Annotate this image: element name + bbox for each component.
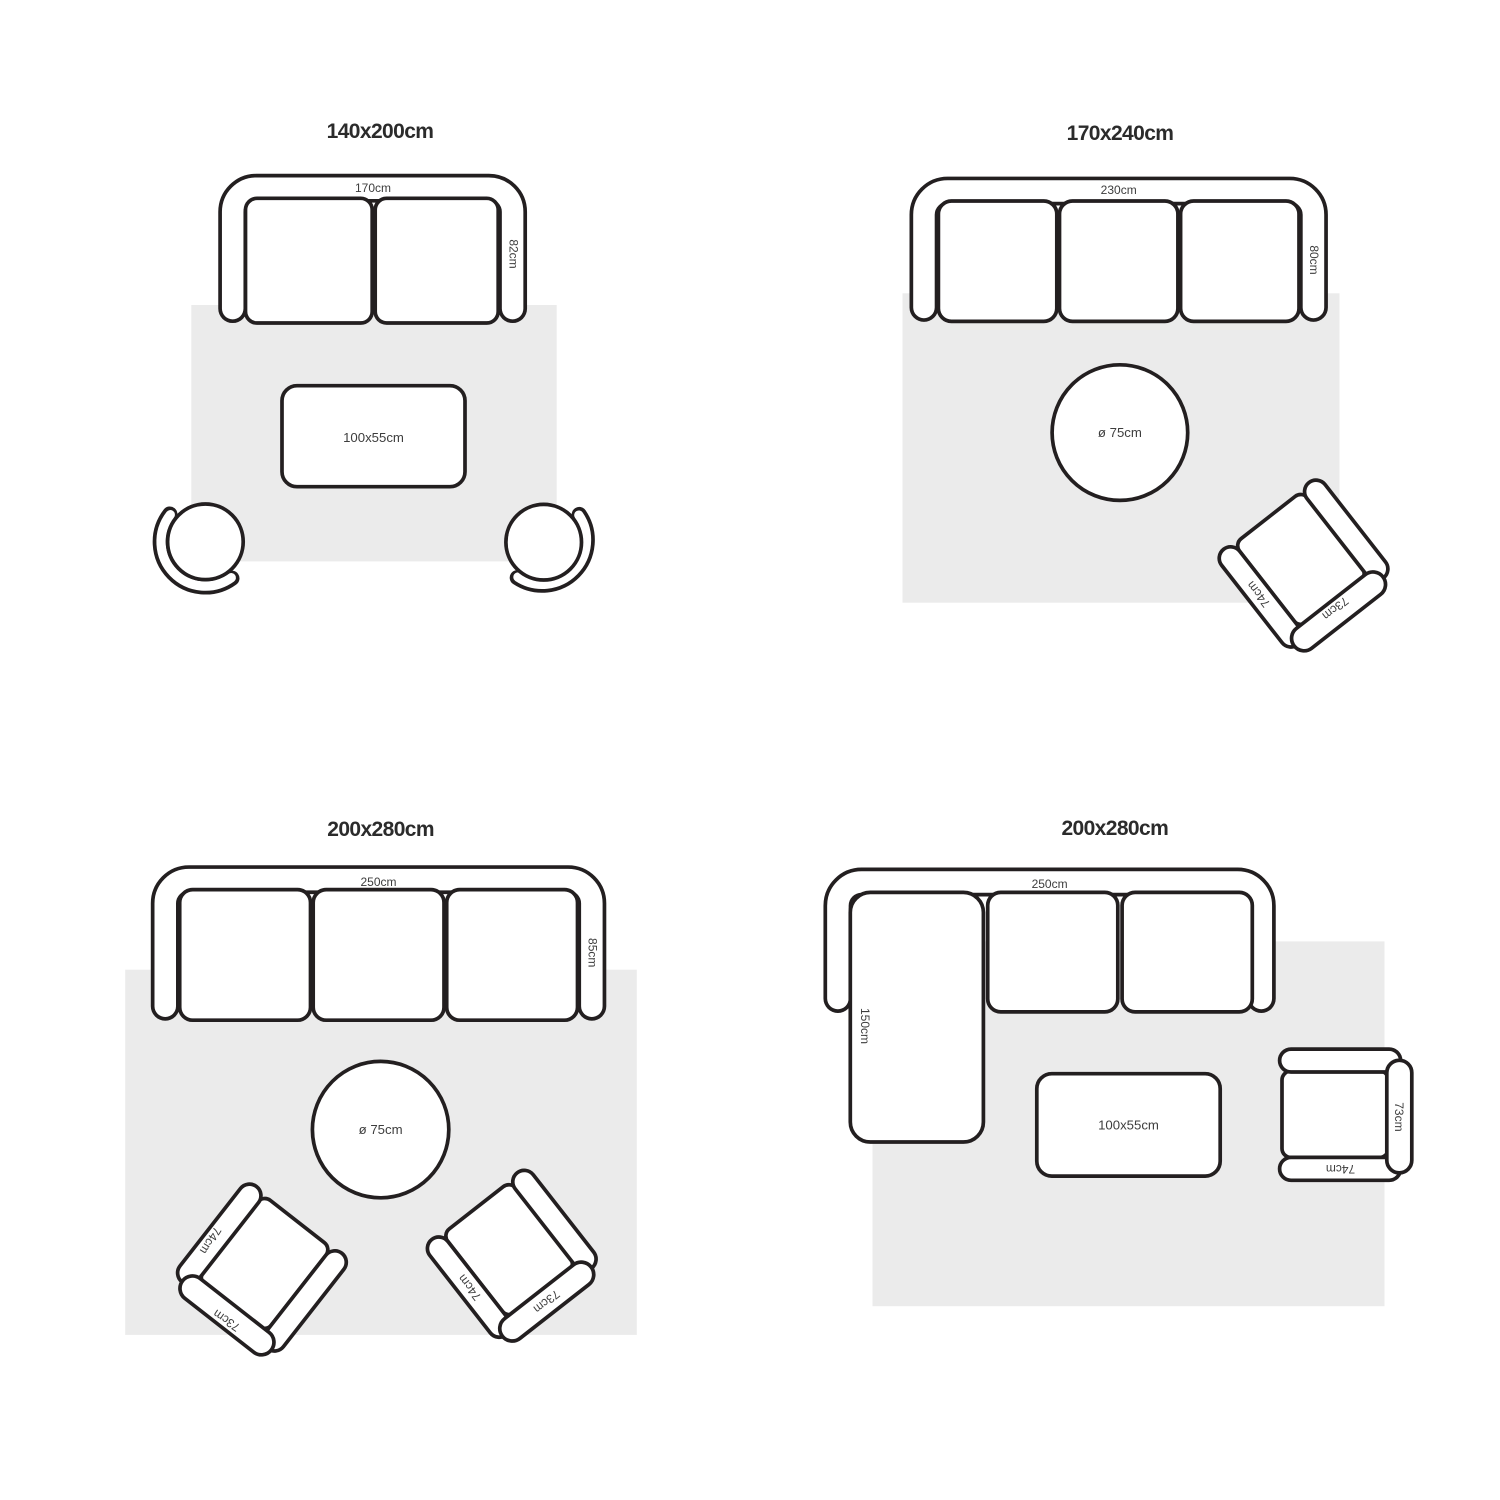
svg-text:230cm: 230cm [1101, 183, 1137, 197]
svg-text:100x55cm: 100x55cm [1098, 1118, 1159, 1133]
svg-text:73cm: 73cm [1392, 1102, 1406, 1131]
svg-text:200x280cm: 200x280cm [1061, 817, 1168, 840]
svg-text:82cm: 82cm [507, 239, 521, 268]
svg-text:200x280cm: 200x280cm [327, 818, 434, 841]
svg-text:74cm: 74cm [1326, 1162, 1355, 1176]
svg-text:250cm: 250cm [360, 875, 396, 889]
svg-text:85cm: 85cm [586, 938, 600, 967]
svg-text:ø 75cm: ø 75cm [1098, 425, 1142, 440]
svg-text:80cm: 80cm [1307, 245, 1321, 274]
svg-text:100x55cm: 100x55cm [343, 430, 404, 445]
svg-text:150cm: 150cm [858, 1008, 872, 1044]
svg-text:140x200cm: 140x200cm [327, 120, 434, 143]
svg-text:170cm: 170cm [355, 181, 391, 195]
svg-text:170x240cm: 170x240cm [1067, 122, 1174, 145]
svg-text:ø 75cm: ø 75cm [359, 1122, 403, 1137]
svg-text:250cm: 250cm [1032, 877, 1068, 891]
